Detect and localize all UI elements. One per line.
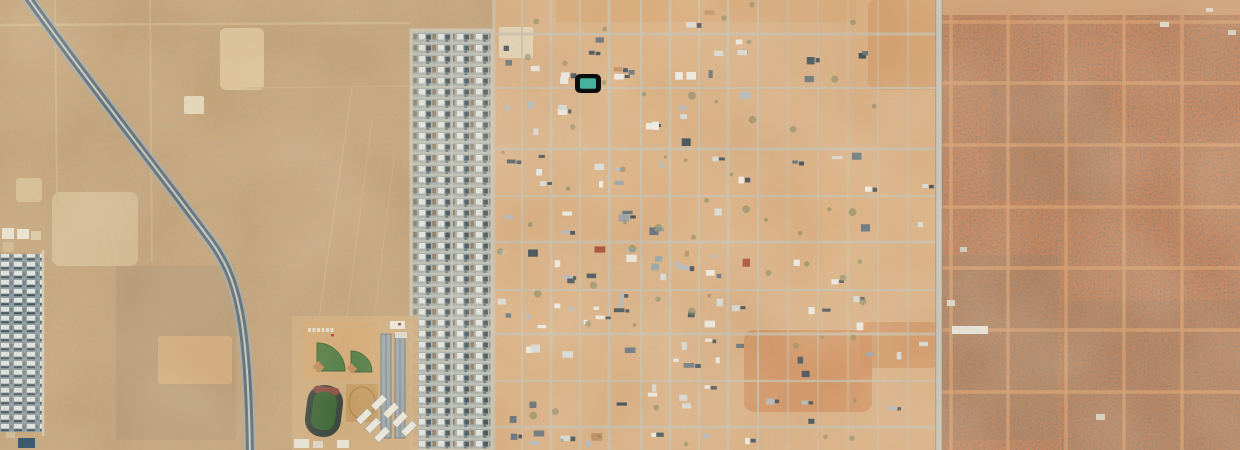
terrain-tonal-variation [0, 0, 1240, 450]
satellite-imagery-canvas[interactable] [0, 0, 1240, 450]
selected-parcel-marker[interactable] [575, 74, 601, 93]
satellite-map-viewport[interactable] [0, 0, 1240, 450]
marker-fill [580, 78, 596, 89]
